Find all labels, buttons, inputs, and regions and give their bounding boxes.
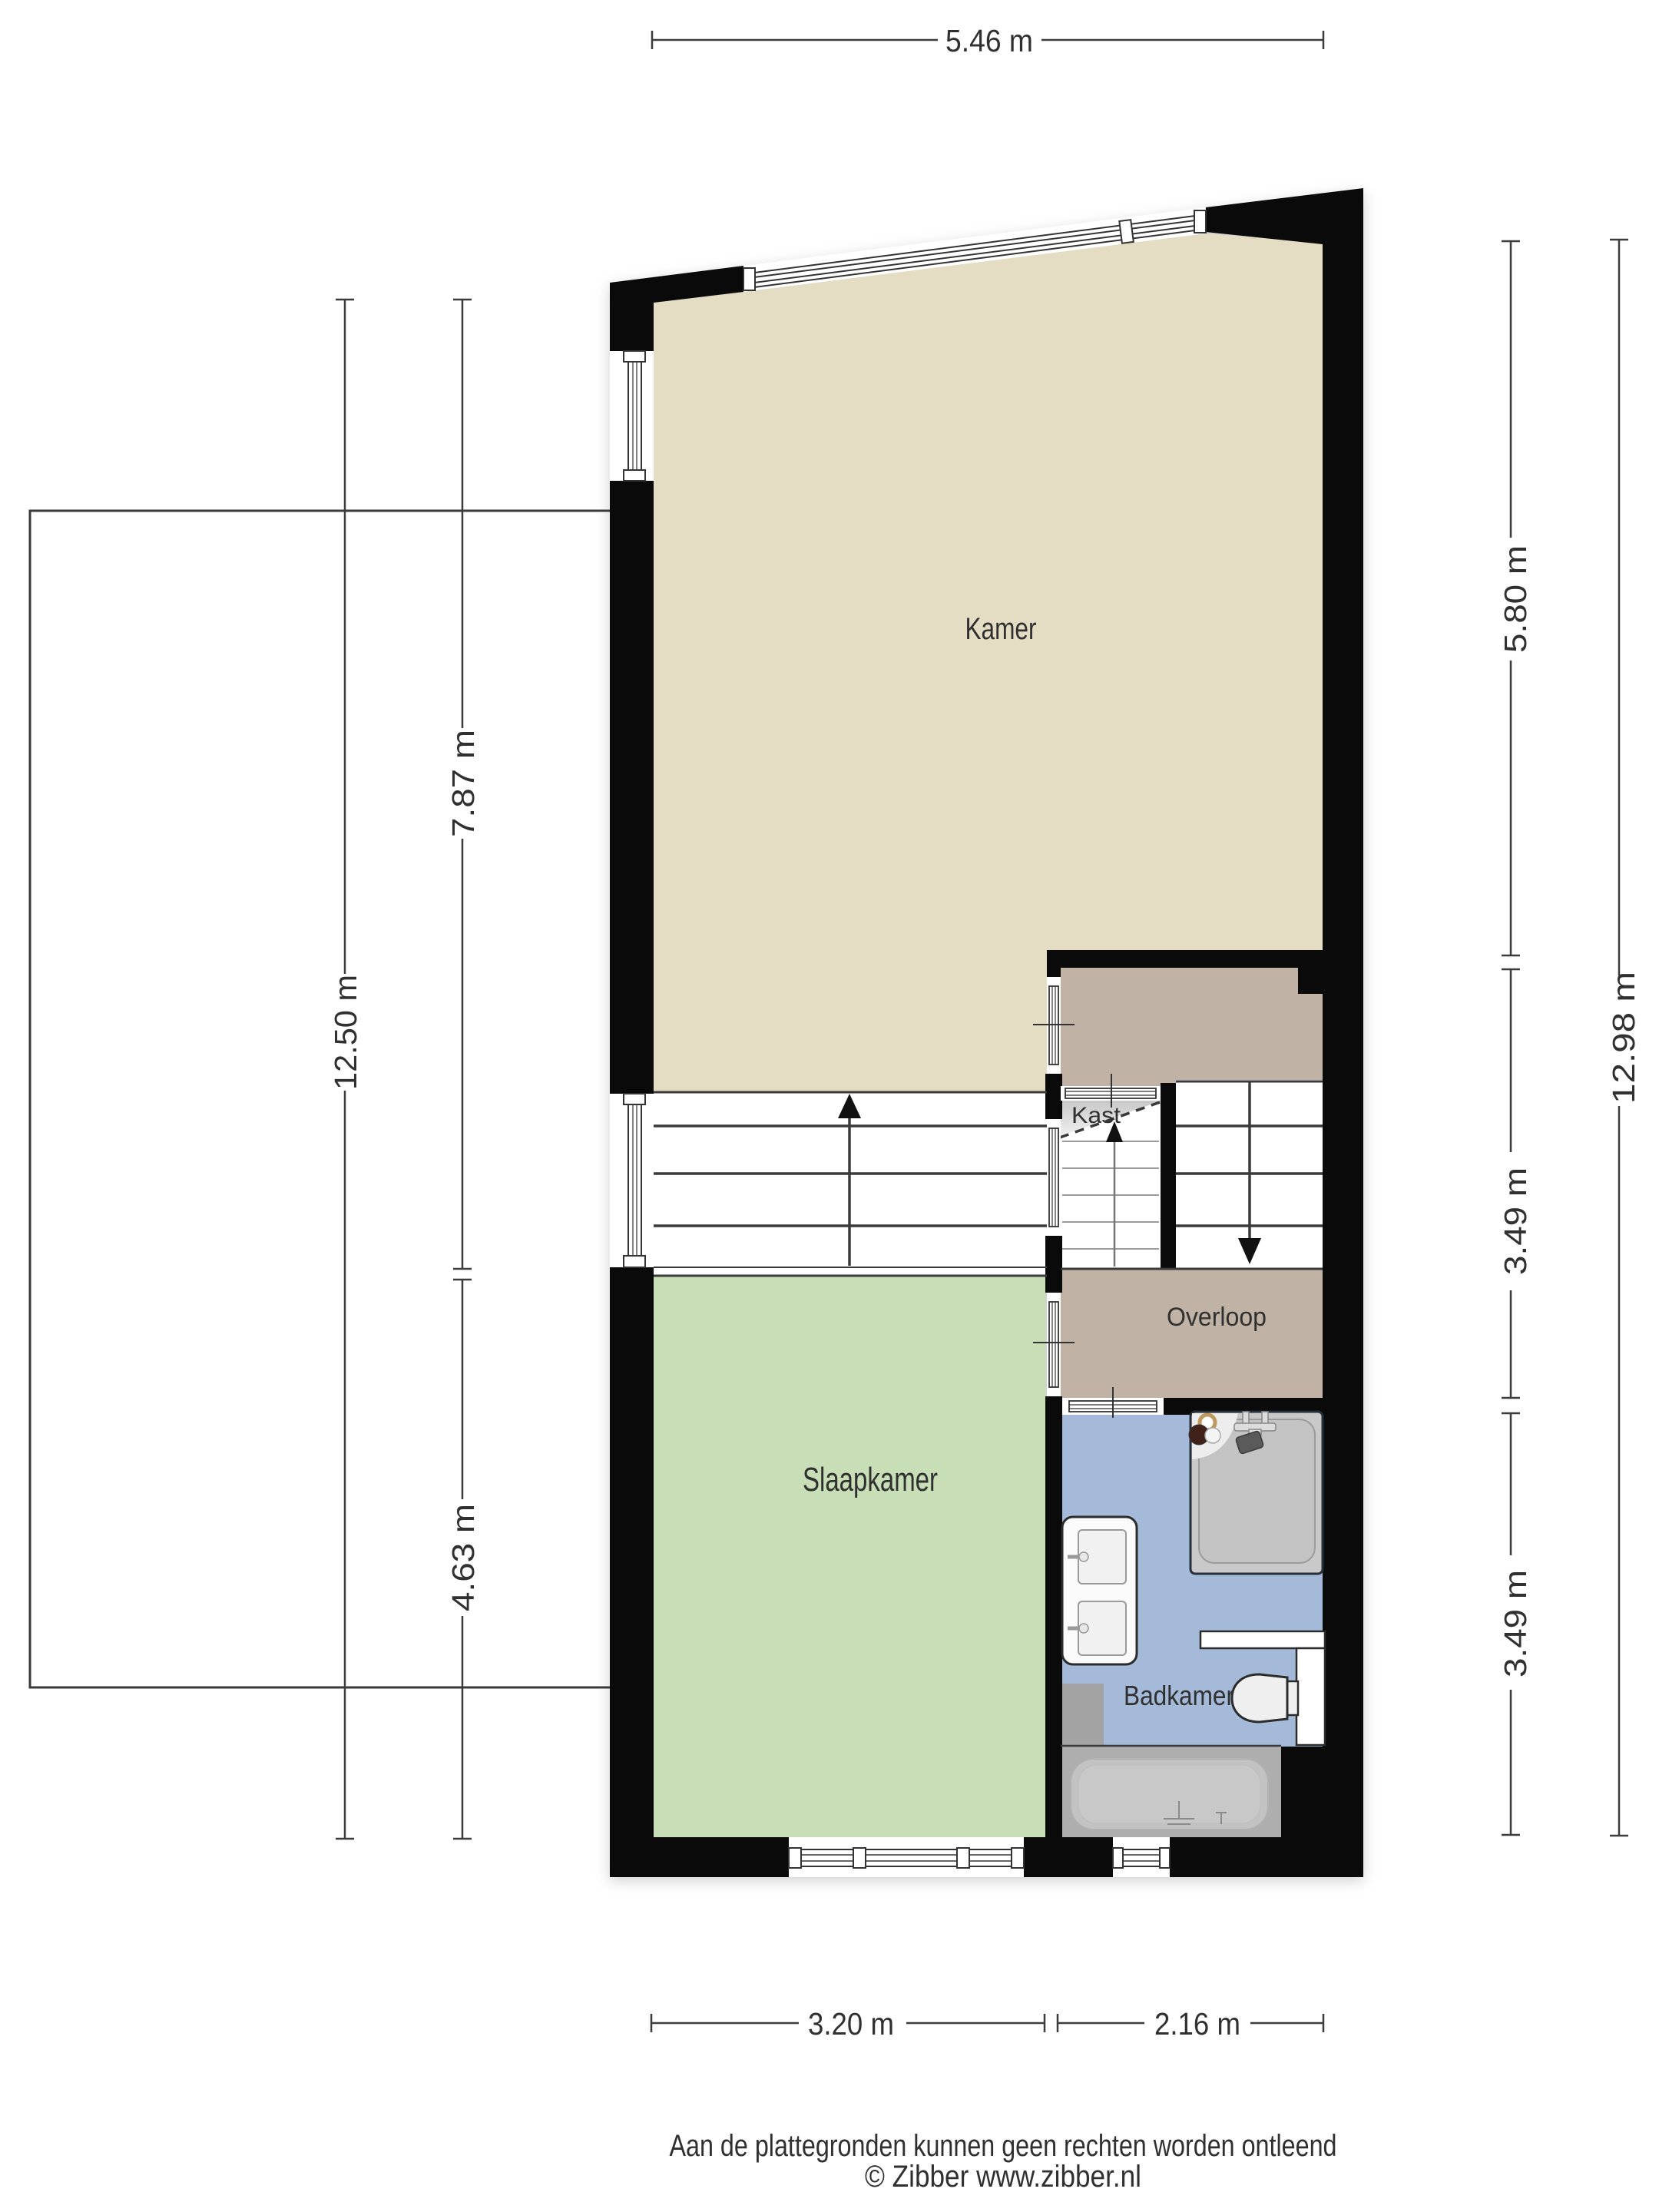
svg-text:Kast: Kast <box>1071 1103 1121 1128</box>
svg-text:3.49 m: 3.49 m <box>1498 1167 1533 1275</box>
svg-text:Overloop: Overloop <box>1167 1303 1267 1332</box>
svg-text:4.63 m: 4.63 m <box>445 1504 481 1611</box>
svg-text:5.46 m: 5.46 m <box>945 23 1033 58</box>
svg-text:Badkamer: Badkamer <box>1124 1680 1234 1711</box>
svg-text:© Zibber www.zibber.nl: © Zibber www.zibber.nl <box>865 2160 1141 2194</box>
svg-text:7.87 m: 7.87 m <box>445 730 481 837</box>
svg-text:Kamer: Kamer <box>965 612 1037 646</box>
svg-text:Slaapkamer: Slaapkamer <box>803 1461 938 1498</box>
svg-text:3.20 m: 3.20 m <box>808 2006 894 2041</box>
svg-text:2.16 m: 2.16 m <box>1154 2006 1240 2041</box>
svg-text:Aan de plattegronden kunnen ge: Aan de plattegronden kunnen geen rechten… <box>670 2129 1337 2163</box>
svg-text:3.49 m: 3.49 m <box>1498 1570 1533 1677</box>
svg-text:12.98 m: 12.98 m <box>1606 972 1641 1104</box>
svg-text:12.50 m: 12.50 m <box>328 975 363 1090</box>
svg-text:5.80 m: 5.80 m <box>1498 545 1533 653</box>
